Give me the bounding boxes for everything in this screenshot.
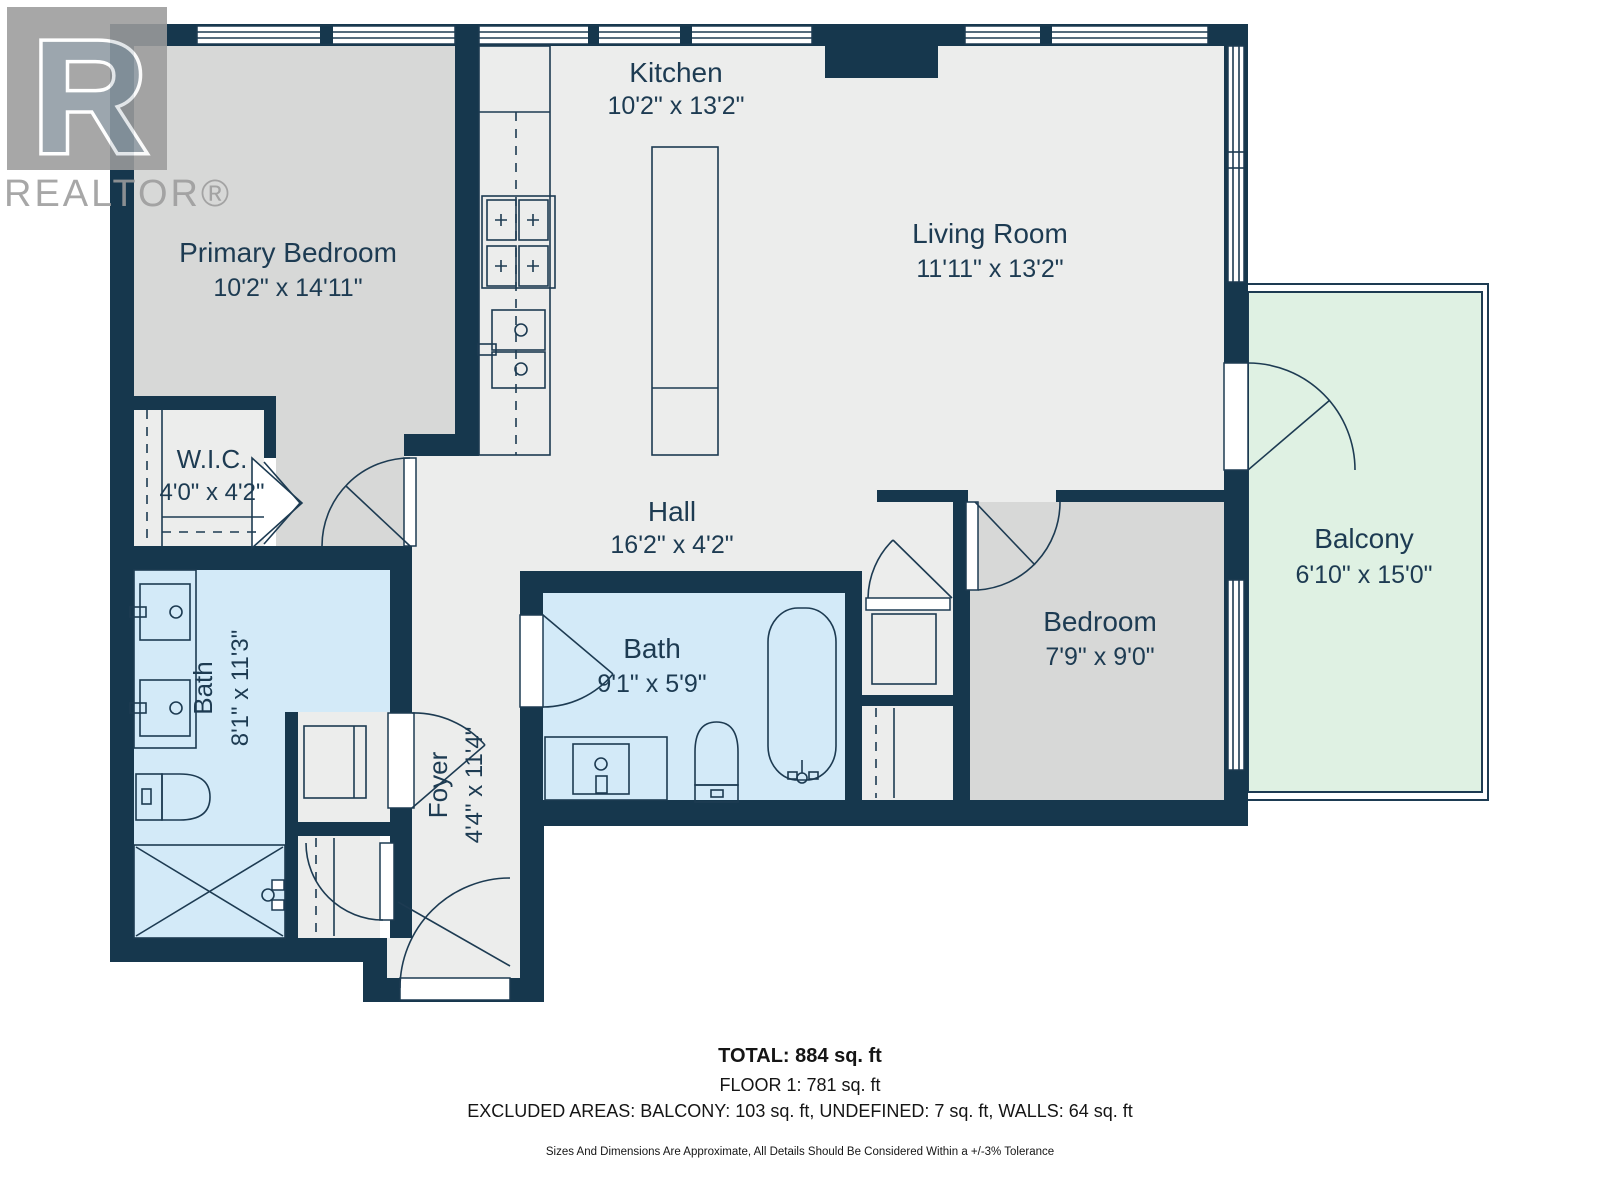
floor-areas: [134, 46, 1488, 978]
bedroom-doorway-gap: [968, 488, 1056, 502]
bath-main-dims: 8'1" x 11'3": [227, 630, 254, 747]
area-summary: TOTAL: 884 sq. ft FLOOR 1: 781 sq. ft EX…: [467, 1045, 1133, 1158]
closet1-floor: [862, 598, 953, 695]
living-room-dims: 11'11" x 13'2": [916, 255, 1063, 283]
excluded-areas-text: EXCLUDED AREAS: BALCONY: 103 sq. ft, UND…: [467, 1101, 1133, 1121]
bench-closet-floor: [298, 712, 390, 822]
foyer-label: Foyer: [423, 751, 453, 818]
window-right-bedroom: [1228, 580, 1244, 770]
balcony-dims: 6'10" x 15'0": [1295, 561, 1432, 589]
kitchen-label: Kitchen: [629, 57, 722, 88]
hall-label: Hall: [648, 496, 696, 527]
window-top-1: [197, 26, 455, 44]
bath-main-label: Bath: [188, 661, 218, 715]
bath-second-dims: 9'1" x 5'9": [597, 670, 706, 698]
bedroom-dims: 7'9" x 9'0": [1045, 643, 1154, 671]
bath-second-label: Bath: [623, 633, 681, 664]
realtor-logo-letter: R: [32, 7, 148, 186]
primary-bedroom-dims: 10'2" x 14'11": [213, 274, 362, 302]
foyer-entry-floor: [387, 938, 412, 978]
foyer-dims: 4'4" x 11'4": [461, 727, 488, 844]
hall-dims: 16'2" x 4'2": [610, 531, 733, 559]
floor-plan-svg: Kitchen 10'2" x 13'2" Living Room 11'11"…: [0, 0, 1600, 1200]
living-kitchen-floor: [479, 46, 1224, 490]
foyer-closet-floor: [298, 836, 380, 938]
wic-label: W.I.C.: [177, 444, 248, 474]
kitchen-dims: 10'2" x 13'2": [607, 92, 744, 120]
realtor-wordmark: REALTOR®: [4, 173, 232, 215]
balcony-label: Balcony: [1314, 523, 1414, 554]
bedroom-label: Bedroom: [1043, 606, 1157, 637]
disclaimer-text: Sizes And Dimensions Are Approximate, Al…: [546, 1146, 1054, 1158]
floor-plan-page: Kitchen 10'2" x 13'2" Living Room 11'11"…: [0, 0, 1600, 1200]
floor-area-text: FLOOR 1: 781 sq. ft: [719, 1075, 880, 1095]
wic-floor: [134, 410, 264, 546]
total-area-text: TOTAL: 884 sq. ft: [718, 1045, 882, 1067]
window-right-living: [1228, 46, 1244, 282]
window-top-2: [479, 26, 812, 44]
closet2-floor: [862, 706, 953, 800]
living-room-label: Living Room: [912, 218, 1068, 249]
wic-dims: 4'0" x 4'2": [160, 479, 265, 506]
primary-bedroom-label: Primary Bedroom: [179, 237, 397, 268]
window-top-3: [965, 26, 1208, 44]
